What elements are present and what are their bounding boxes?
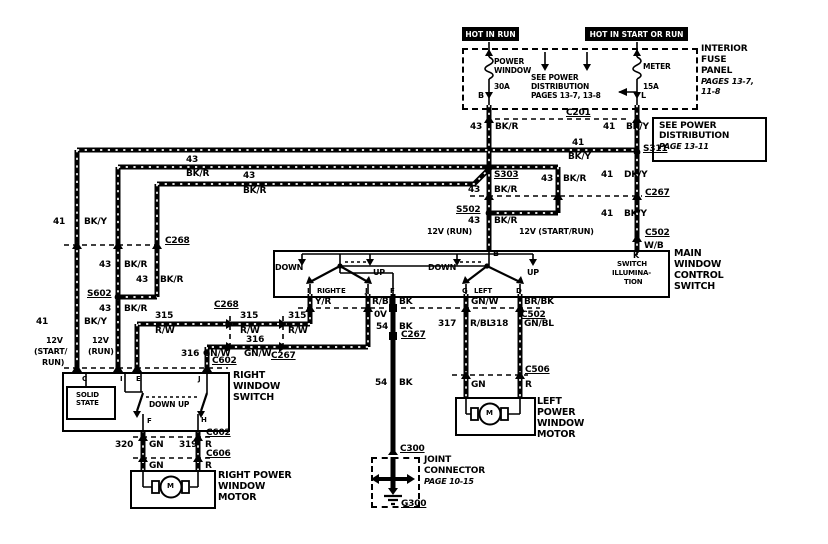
circuit-number: 54	[375, 379, 387, 388]
main-switch-title: WINDOW	[674, 260, 721, 270]
circuit-number: 43	[470, 123, 482, 132]
solid-state-label: STATE	[76, 400, 99, 407]
left-power-window-motor-box	[455, 397, 536, 436]
solid-state-label: SOLID	[76, 392, 99, 399]
hot-in-run-tag: HOT IN RUN	[462, 27, 519, 41]
left-motor-title: MOTOR	[537, 430, 575, 440]
left-motor-title: WINDOW	[537, 419, 584, 429]
wire-color: BK/R	[124, 305, 147, 314]
circuit-number: 315	[288, 312, 306, 321]
page-ref: PAGES 13-7,	[701, 78, 754, 86]
circuit-number: 41	[572, 139, 584, 148]
pin-label: I	[120, 376, 122, 383]
left-motor-title: LEFT	[537, 397, 562, 407]
connector-label-c300: C300	[400, 445, 425, 454]
connector-label-c267: C267	[401, 331, 426, 340]
circuit-number: 316	[246, 336, 264, 345]
right-motor-title: WINDOW	[218, 482, 265, 492]
wire-color: BK/R	[186, 170, 209, 179]
circuit-number: 315	[240, 312, 258, 321]
circuit-number: 41	[603, 123, 615, 132]
main-switch-title: MAIN	[674, 249, 702, 259]
fuse-name: METER	[643, 63, 671, 71]
wire-color: BK/R	[243, 187, 266, 196]
power-dist-ref: DISTRIBUTION	[659, 132, 729, 141]
circuit-number: 43	[136, 276, 148, 285]
wire-color: GN	[149, 441, 164, 450]
wire-color: BK/R	[124, 261, 147, 270]
circuit-number: 41	[36, 318, 48, 327]
right-switch-title: WINDOW	[233, 382, 280, 392]
wire-color: BK/Y	[624, 210, 647, 219]
wire-color: BK/R	[160, 276, 183, 285]
see-distribution-note: DISTRIBUTION	[531, 83, 589, 91]
see-distribution-note: PAGES 13-7, 13-8	[531, 92, 601, 100]
connector-label-c268: C268	[214, 301, 239, 310]
splice-label-s311: S311	[643, 145, 667, 154]
main-switch-title: CONTROL	[674, 271, 724, 281]
circuit-number: 41	[53, 218, 65, 227]
panel-title: FUSE	[701, 56, 726, 65]
power-dist-ref: SEE POWER	[659, 122, 716, 131]
fuse-name: WINDOW	[494, 67, 531, 75]
circuit-number: 319	[179, 441, 197, 450]
splice-label-s303: S303	[494, 171, 518, 180]
switch-position-label: UP	[373, 269, 385, 277]
pin-label: F	[147, 418, 152, 425]
wire-color: W/B	[644, 242, 663, 251]
motor-m-label: M	[486, 410, 493, 417]
wire-color: DK/Y	[624, 171, 647, 180]
circuit-number: 320	[115, 441, 133, 450]
pin-label: J	[365, 288, 367, 295]
pin-label: K	[633, 252, 639, 260]
wire-color: BK/Y	[568, 153, 591, 162]
wire-color: BK/Y	[84, 318, 107, 327]
right-switch-title: RIGHT	[233, 371, 265, 381]
switch-position-label: DOWN	[428, 264, 456, 272]
voltage-note: 12V	[46, 337, 63, 345]
illumination-label: TION	[624, 279, 642, 286]
circuit-number: 43	[541, 175, 553, 184]
wire-color: R/W	[155, 327, 175, 336]
see-distribution-note: SEE POWER	[531, 74, 579, 82]
circuit-number: 43	[99, 305, 111, 314]
pin-label: E	[136, 376, 141, 383]
panel-title: INTERIOR	[701, 45, 747, 54]
wire-color: GN/W	[244, 350, 271, 359]
wire-color: GN/W	[203, 350, 230, 359]
voltage-note: 12V (RUN)	[427, 228, 472, 236]
connector-label-c201: C201	[566, 109, 591, 118]
circuit-number: 43	[468, 186, 480, 195]
wire-color: BK	[399, 379, 412, 388]
connector-label-c602: C602	[206, 429, 231, 438]
left-motor-title: POWER	[537, 408, 575, 418]
fuse-name: POWER	[494, 58, 524, 66]
circuit-number: 317	[438, 320, 456, 329]
wire-color: R/W	[288, 327, 308, 336]
hot-in-start-or-run-tag: HOT IN START OR RUN	[585, 27, 688, 41]
pin-label: D	[516, 288, 522, 295]
connector-label-c502: C502	[645, 229, 670, 238]
pin-label: F	[390, 288, 395, 295]
window-side-label: LEFT	[474, 288, 492, 295]
circuit-number: 316	[181, 350, 199, 359]
connector-label-c267: C267	[271, 352, 296, 361]
connector-label-c268: C268	[165, 237, 190, 246]
right-motor-title: RIGHT POWER	[218, 471, 292, 481]
wire-color: GN	[471, 381, 486, 390]
joint-connector-title: JOINT	[424, 456, 451, 465]
wire-color: BK/Y	[626, 123, 649, 132]
circuit-number: 41	[601, 210, 613, 219]
wire-color: GN	[149, 462, 164, 471]
wire-color: BK/R	[494, 217, 517, 226]
wire-color: BK/R	[563, 175, 586, 184]
voltage-note: RUN)	[42, 359, 64, 367]
circuit-number: 54	[376, 323, 388, 332]
pin-label: L	[641, 92, 646, 100]
wire-color: BK	[399, 298, 412, 307]
pin-label: B	[478, 92, 484, 100]
pin-label: G	[462, 288, 468, 295]
splice-label-s502: S502	[456, 206, 480, 215]
main-switch-title: SWITCH	[674, 282, 715, 292]
pin-label: I	[307, 288, 309, 295]
wire-color: R	[525, 381, 532, 390]
switch-position-label: UP	[178, 401, 189, 409]
ground-label-g300: G300	[401, 500, 426, 509]
connector-label-c506: C506	[525, 366, 550, 375]
switch-position-label: DOWN	[149, 401, 175, 409]
pin-label: E	[341, 288, 346, 295]
switch-position-label: UP	[527, 269, 539, 277]
splice-label-s602: S602	[87, 290, 111, 299]
circuit-number: 315	[155, 312, 173, 321]
circuit-number: 43	[99, 261, 111, 270]
pin-label: J	[198, 376, 200, 383]
pin-label: B	[493, 250, 499, 258]
connector-label-c267: C267	[645, 189, 670, 198]
motor-m-label: M	[167, 483, 174, 490]
page-ref: 11-8	[701, 88, 720, 96]
fuse-rating: 15A	[643, 83, 659, 91]
circuit-number: 318	[490, 320, 508, 329]
joint-connector-title: CONNECTOR	[424, 467, 485, 476]
connector-label-c606: C606	[206, 450, 231, 459]
window-side-label: RIGHT	[317, 288, 340, 295]
page-ref: PAGE 10-15	[424, 478, 474, 486]
pin-label: H	[201, 417, 207, 424]
circuit-number: 43	[186, 156, 198, 165]
voltage-note: 12V (START/RUN)	[519, 228, 594, 236]
circuit-number: 41	[601, 171, 613, 180]
wire-color: BK/R	[495, 123, 518, 132]
right-motor-title: MOTOR	[218, 493, 256, 503]
wire-color: BK/Y	[84, 218, 107, 227]
fuse-rating: 30A	[494, 83, 510, 91]
wire-color: R/BK	[372, 298, 395, 307]
pin-label: C	[82, 376, 87, 383]
panel-title: PANEL	[701, 67, 732, 76]
circuit-number: 43	[243, 172, 255, 181]
wire-color: GN/BL	[524, 320, 554, 329]
wire-color: BR/BK	[524, 298, 554, 307]
circuit-number: 43	[468, 217, 480, 226]
illumination-label: SWITCH	[617, 261, 647, 268]
wire-color: R/BL	[470, 320, 492, 329]
voltage-note: (START/	[34, 348, 67, 356]
illumination-label: ILLUMINA-	[612, 270, 651, 277]
wire-color: R	[205, 462, 212, 471]
switch-position-label: DOWN	[275, 264, 303, 272]
right-switch-title: SWITCH	[233, 393, 274, 403]
wire-color: GN/W	[471, 298, 498, 307]
wire-color: BK/R	[494, 186, 517, 195]
voltage-note: 12V	[92, 337, 109, 345]
voltage-note: (RUN)	[88, 348, 114, 356]
voltage-note: 0V	[374, 311, 387, 320]
wire-color: Y/R	[315, 298, 331, 307]
power-window-wiring-diagram: HOT IN RUN HOT IN START OR RUN POWER WIN…	[0, 0, 828, 544]
